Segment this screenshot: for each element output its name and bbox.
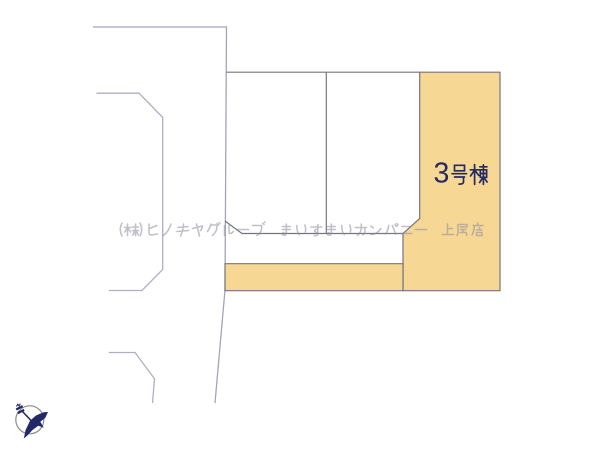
- svg-text:3: 3: [434, 157, 450, 189]
